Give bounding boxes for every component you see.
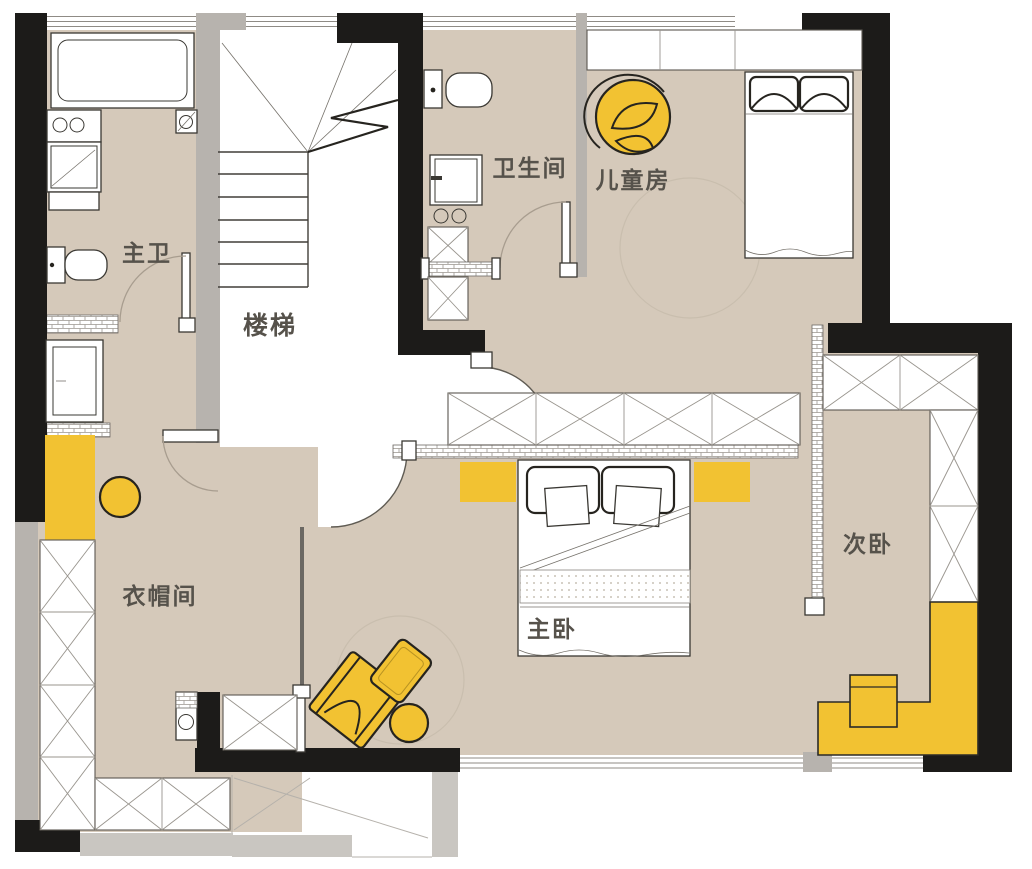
tiled-wall-master-north [393,445,798,458]
master-closet [448,393,800,445]
tiled-sill-cloakroom [40,423,110,437]
room-label-cloakroom: 衣帽间 [123,583,198,609]
kids-wardrobe-top [587,30,862,70]
nightstand-left [460,462,516,502]
room-label-master-bath: 主卫 [122,240,172,266]
kids-bed [745,72,853,258]
floor-plan-svg: 主卫 楼梯 卫生间 儿童房 次卧 主卧 衣帽间 [0,0,1032,869]
nightstand-right [694,462,750,502]
vanity-stool [100,477,140,517]
room-label-secondary-bedroom: 次卧 [843,531,893,557]
vanity-desk [45,435,95,540]
toilet-bathroom [424,70,492,108]
corner-basin [176,110,197,133]
bathtub [51,33,194,108]
window-bottom-master [460,755,803,772]
wall-gray-bottom-left [80,833,233,856]
room-label-stairs: 楼梯 [243,312,297,340]
bath-cabinet [47,142,101,210]
wall-gray-bottom-mid [232,835,352,857]
wall-gray-west [15,517,38,833]
cloakroom-wardrobe-left [40,540,95,830]
side-table [390,704,428,742]
floor-cloakroom-east [230,443,302,832]
tiled-wall-masterbath-south [44,315,118,333]
wall-gray-lower-level [432,772,458,857]
cloakroom-dresser [46,340,103,422]
cloakroom-wardrobe-bottom [95,778,230,830]
cabinet-south [223,695,297,750]
bathroom-cabinet-2 [428,277,468,320]
floor-plan-page: 主卫 楼梯 卫生间 儿童房 次卧 主卧 衣帽间 [0,0,1032,869]
bathroom-cabinet-1 [428,227,468,264]
room-label-master-bedroom: 主卧 [527,616,577,642]
window-top-bathroom [423,13,576,30]
window-top-masterbath [47,13,196,30]
window-bottom-secondary [832,755,923,772]
tiled-wall-secondary-west [812,325,823,610]
window-top-stairs [246,13,337,30]
vanity-sink [47,110,101,142]
bed-blanket-band [520,570,690,603]
wall-gray-bathroom-east [576,13,587,277]
bathroom-vanity [430,155,482,205]
room-label-bathroom: 卫生间 [493,155,568,181]
sofa-table [850,675,897,727]
secondary-wardrobe-top [823,355,978,410]
room-label-kids-room: 儿童房 [596,167,671,193]
knee-wall-cap [805,598,824,615]
toilet-master-bath [47,247,107,283]
wall-gray-stairs [196,13,220,443]
laundry-basin-unit [176,692,197,740]
secondary-wardrobe-right [930,410,978,602]
window-top-kidsroom [587,13,802,30]
